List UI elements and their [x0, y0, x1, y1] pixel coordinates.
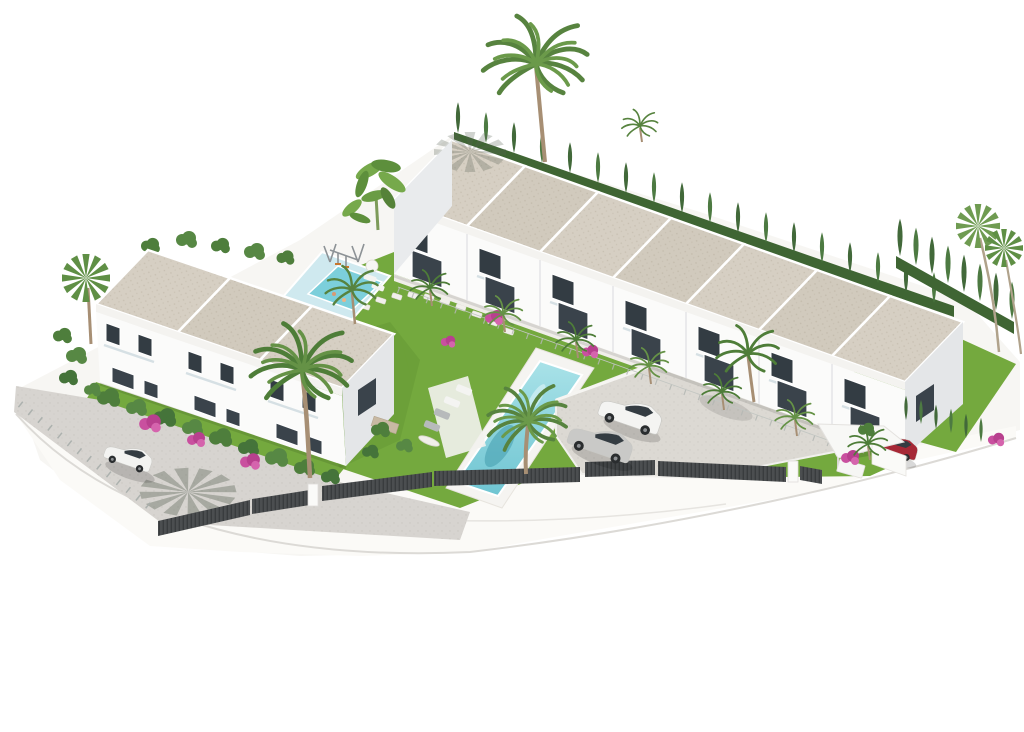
- bather-figure: [332, 292, 336, 296]
- gate-pillar: [308, 484, 318, 506]
- swing-seat: [335, 263, 341, 265]
- bather-figure: [342, 298, 346, 302]
- gate-pillar: [788, 461, 798, 482]
- palm-trunk: [526, 424, 528, 474]
- banana-stem: [376, 196, 378, 230]
- render-image: [0, 0, 1024, 732]
